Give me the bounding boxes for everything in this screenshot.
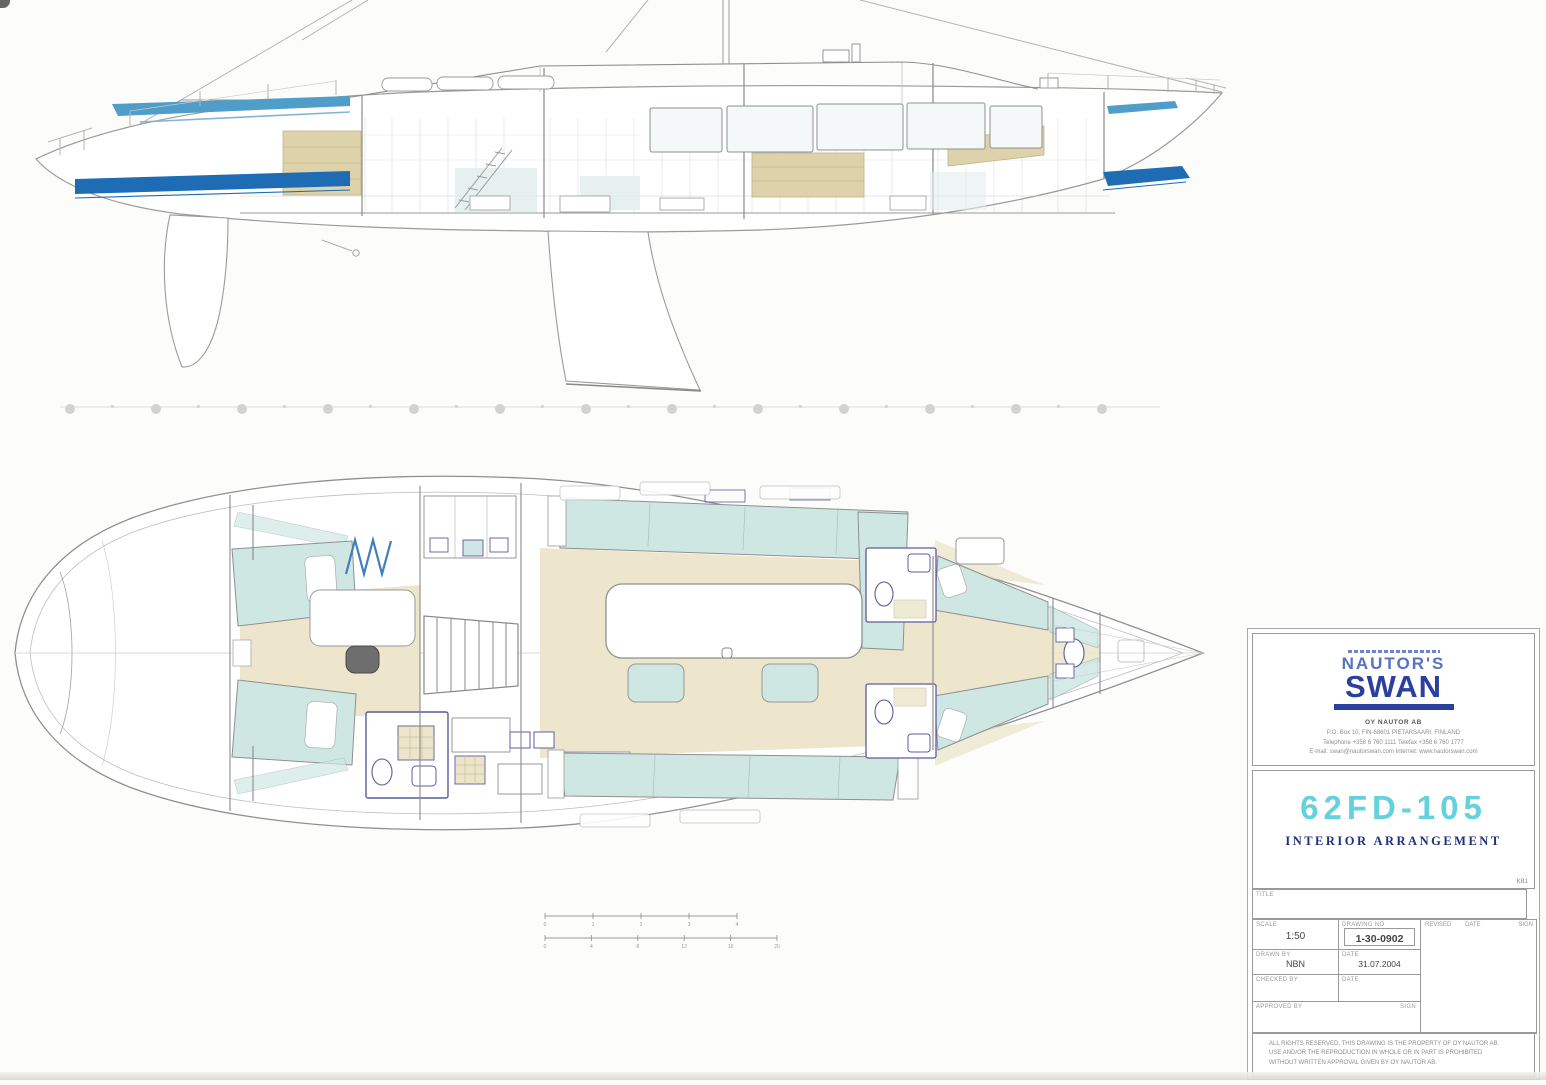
logo-tagline-rule	[1348, 650, 1440, 653]
keel	[548, 231, 700, 390]
propeller	[353, 250, 359, 256]
washbasin	[908, 734, 930, 752]
drawing-no-value: 1-30-0902	[1344, 928, 1415, 946]
approved-label: APPROVED BY	[1256, 1004, 1302, 1010]
page-bottom-edge	[0, 1072, 1546, 1080]
revised-label: REVISED	[1425, 922, 1451, 928]
drawing-title: INTERIOR ARRANGEMENT	[1253, 834, 1534, 849]
saloon-stool	[628, 664, 684, 702]
saloon-windows	[650, 103, 1042, 152]
approved-sign-label: SIGN	[1400, 1004, 1416, 1010]
approved-cell: APPROVED BY SIGN	[1253, 1002, 1421, 1034]
revision-cell: REVISED DATE SIGN	[1421, 920, 1537, 1034]
drawing-sheet: 01234048121620 NAUTOR'S SWAN OY NAUTOR A…	[0, 0, 1546, 1080]
drawing-no-cell: DRAWING NO 1-30-0902	[1339, 920, 1421, 950]
washbasin	[908, 554, 930, 572]
washbasin	[412, 766, 436, 786]
galley-sink	[510, 732, 530, 748]
scale-cell: SCALE 1:50	[1253, 920, 1339, 950]
date-label: DATE	[1342, 952, 1359, 958]
copyright-box: ALL RIGHTS RESERVED. THIS DRAWING IS THE…	[1252, 1033, 1535, 1077]
svg-text:0: 0	[544, 922, 547, 928]
title-field-label: TITLE	[1256, 892, 1274, 898]
scale-value: 1:50	[1253, 931, 1338, 942]
saloon-table	[606, 584, 862, 658]
drawn-cell: DRAWN BY NBN	[1253, 950, 1339, 975]
prop-shaft	[322, 240, 352, 251]
plan-view	[15, 476, 1203, 829]
aft-stbd-berth	[232, 680, 356, 765]
company-name: OY NAUTOR AB	[1253, 719, 1534, 726]
station-mark-row	[60, 404, 1160, 414]
vanity-desk	[310, 590, 415, 646]
svg-text:12: 12	[681, 944, 687, 950]
scale-label: SCALE	[1256, 922, 1277, 928]
date-cell: DATE 31.07.2004	[1339, 950, 1421, 975]
runner-stay-line	[302, 0, 368, 40]
svg-text:1: 1	[592, 922, 595, 928]
fields-grid: SCALE 1:50 DRAWING NO 1-30-0902 REVISED …	[1252, 919, 1537, 1033]
revised-date-label: DATE	[1465, 922, 1481, 928]
rudder	[164, 215, 228, 367]
saloon-stool-2	[762, 664, 818, 702]
logo-box: NAUTOR'S SWAN OY NAUTOR AB P.O. Box 10, …	[1252, 633, 1535, 766]
lifeline-fwd	[1048, 73, 1220, 80]
svg-text:20: 20	[774, 944, 780, 950]
checked-cell: CHECKED BY	[1253, 975, 1339, 1002]
checked-date-label: DATE	[1342, 977, 1359, 983]
key-ref: KB1	[1517, 879, 1528, 885]
profile-view	[36, 0, 1226, 391]
companionway-stairs	[424, 616, 518, 694]
inner-stay-line	[606, 0, 648, 52]
desk-chair	[346, 646, 379, 673]
scale-bars: 01234048121620	[544, 913, 780, 950]
svg-text:2: 2	[640, 922, 643, 928]
berth-pillow	[304, 701, 337, 749]
saloon-settee-profile	[752, 153, 864, 197]
drawn-label: DRAWN BY	[1256, 952, 1291, 958]
date-value: 31.07.2004	[1339, 959, 1420, 969]
title-field: TITLE	[1252, 889, 1527, 919]
svg-text:4: 4	[736, 922, 739, 928]
aft-head	[366, 712, 448, 798]
title-block: NAUTOR'S SWAN OY NAUTOR AB P.O. Box 10, …	[1247, 628, 1540, 1080]
crew-toilet	[1064, 639, 1084, 667]
logo-underline-bar	[1334, 704, 1454, 710]
model-code: 62FD-105	[1253, 789, 1534, 827]
toilet	[372, 759, 392, 785]
svg-text:0: 0	[544, 944, 547, 950]
svg-text:16: 16	[728, 944, 734, 950]
galley-sink-2	[534, 732, 554, 748]
swan-logo: SWAN	[1253, 673, 1534, 702]
svg-text:8: 8	[636, 944, 639, 950]
svg-text:3: 3	[688, 922, 691, 928]
toilet	[875, 700, 893, 724]
mast-step	[722, 648, 732, 658]
saloon-settee-bottom	[558, 753, 900, 800]
pantry-lockers	[424, 496, 516, 558]
toilet	[875, 582, 893, 606]
model-box: 62FD-105 INTERIOR ARRANGEMENT KB1	[1252, 770, 1535, 889]
company-address: P.O. Box 10, FIN-68601 PIETARSAARI, FINL…	[1253, 729, 1534, 757]
drawn-value: NBN	[1253, 959, 1338, 969]
stove	[455, 756, 485, 784]
svg-text:4: 4	[590, 944, 593, 950]
sign-label: SIGN	[1518, 922, 1533, 928]
shower-tray	[398, 726, 434, 760]
checked-date-cell: DATE	[1339, 975, 1421, 1002]
checked-label: CHECKED BY	[1256, 977, 1298, 983]
